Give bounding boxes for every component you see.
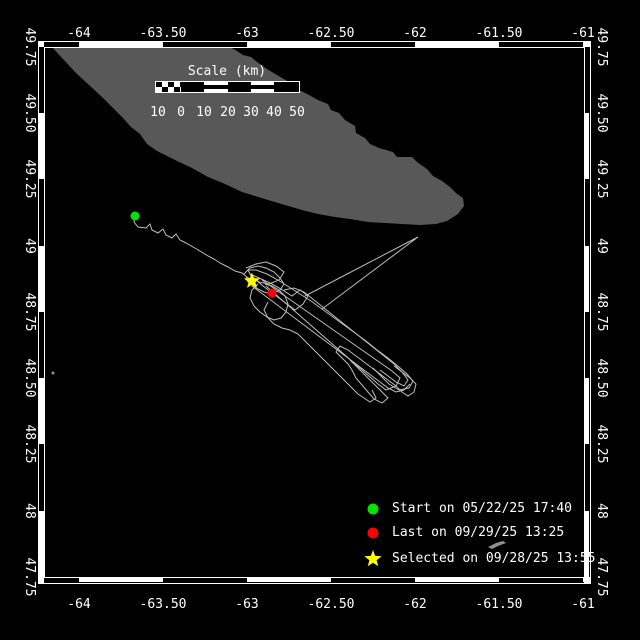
y-axis-label-right: 48	[594, 503, 609, 519]
legend-label-0: Start on 05/22/25 17:40	[392, 501, 572, 516]
y-axis-label-right: 48.75	[594, 292, 609, 331]
x-axis-label-bottom: -63	[235, 597, 258, 612]
y-axis-label-right: 47.75	[594, 557, 609, 596]
legend-dot	[368, 504, 379, 515]
x-axis-label-bottom: -61	[571, 597, 594, 612]
map-svg: -64-64-63.50-63.50-63-63-62.50-62.50-62-…	[0, 0, 640, 640]
frame-left-seg	[39, 246, 44, 312]
tracking-map-canvas: -64-64-63.50-63.50-63-63-62.50-62.50-62-…	[0, 0, 640, 640]
frame-left-seg	[39, 179, 44, 246]
x-axis-label-bottom: -63.50	[140, 597, 187, 612]
frame-left-seg	[39, 47, 44, 113]
y-axis-label-right: 49.50	[594, 93, 609, 132]
legend-marker-circle	[361, 497, 385, 521]
x-axis-label-top: -63.50	[140, 26, 187, 41]
gray-speck	[52, 372, 55, 375]
track-segment-0	[134, 216, 252, 280]
legend-label-2: Selected on 09/28/25 13:55	[392, 551, 596, 566]
x-axis-label-top: -61	[571, 26, 594, 41]
track-segment-1	[246, 262, 413, 390]
y-axis-label-right: 49.75	[594, 27, 609, 66]
frame-top-seg	[38, 42, 79, 47]
legend-star	[364, 550, 381, 566]
x-axis-label-top: -62.50	[308, 26, 355, 41]
frame-top-seg	[415, 42, 499, 47]
x-axis-label-top: -61.50	[476, 26, 523, 41]
last-position-marker	[268, 289, 277, 298]
frame-left-seg	[39, 113, 44, 179]
frame-top-seg	[331, 42, 415, 47]
y-axis-label-right: 48.50	[594, 358, 609, 397]
frame-left-seg	[39, 444, 44, 511]
y-axis-label-left: 49.75	[22, 27, 37, 66]
frame-top-seg	[247, 42, 331, 47]
legend-marker-circle	[361, 521, 385, 545]
y-axis-label-left: 48.25	[22, 424, 37, 463]
x-axis-label-top: -64	[67, 26, 91, 41]
y-axis-label-left: 49.50	[22, 93, 37, 132]
x-axis-label-top: -62	[403, 26, 426, 41]
y-axis-label-right: 49.25	[594, 159, 609, 198]
frame-top-seg	[499, 42, 583, 47]
frame-left-seg	[39, 312, 44, 378]
y-axis-label-left: 49	[22, 238, 37, 254]
frame-top-seg	[79, 42, 163, 47]
y-axis-label-right: 49	[594, 238, 609, 254]
x-axis-label-top: -63	[235, 26, 258, 41]
start-position-marker	[131, 212, 140, 221]
y-axis-label-left: 48.50	[22, 358, 37, 397]
frame-left-seg	[39, 511, 44, 577]
track-segment-9	[264, 302, 376, 402]
island-landmass	[52, 47, 464, 225]
y-axis-label-left: 48.75	[22, 292, 37, 331]
track-segment-5	[305, 237, 418, 309]
frame-left-seg	[39, 378, 44, 444]
legend-dot	[368, 528, 379, 539]
legend-label-1: Last on 09/29/25 13:25	[392, 525, 564, 540]
y-axis-label-left: 48	[22, 503, 37, 519]
x-axis-label-bottom: -62	[403, 597, 426, 612]
y-axis-label-left: 49.25	[22, 159, 37, 198]
legend-marker-star	[361, 547, 385, 571]
frame-top-seg	[163, 42, 247, 47]
y-axis-label-left: 47.75	[22, 557, 37, 596]
x-axis-label-bottom: -62.50	[308, 597, 355, 612]
small-gray-mark	[488, 541, 506, 549]
x-axis-label-bottom: -61.50	[476, 597, 523, 612]
track-segment-7	[284, 288, 408, 386]
y-axis-label-right: 48.25	[594, 424, 609, 463]
x-axis-label-bottom: -64	[67, 597, 91, 612]
